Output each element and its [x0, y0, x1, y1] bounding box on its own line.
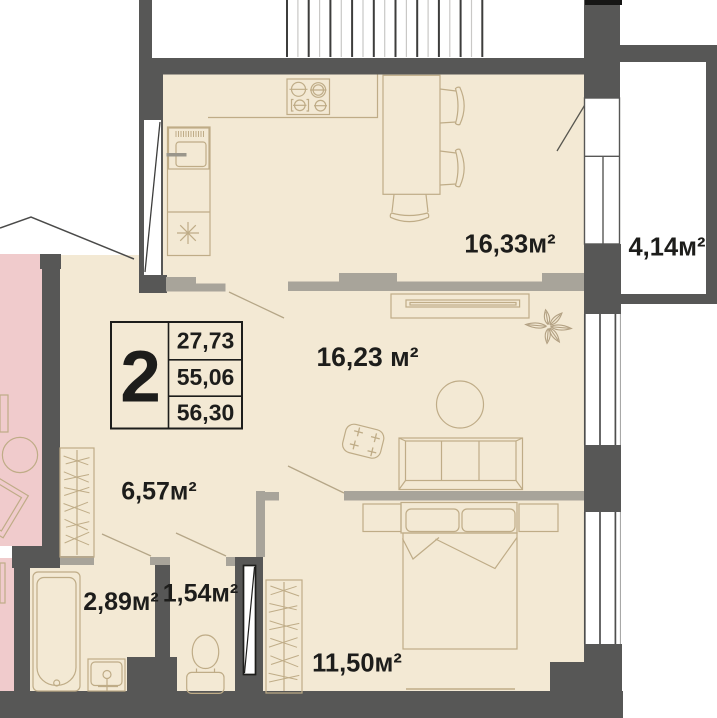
svg-text:1,54м²: 1,54м²: [163, 580, 238, 608]
svg-text:56,30: 56,30: [177, 399, 235, 425]
svg-text:2,89м²: 2,89м²: [83, 588, 158, 616]
svg-text:55,06: 55,06: [177, 364, 235, 390]
svg-text:27,73: 27,73: [177, 328, 235, 354]
svg-text:6,57м²: 6,57м²: [121, 478, 196, 506]
svg-text:2: 2: [120, 337, 161, 418]
svg-text:4,14м²: 4,14м²: [629, 234, 706, 262]
svg-text:11,50м²: 11,50м²: [312, 650, 402, 678]
svg-text:16,23 м²: 16,23 м²: [316, 342, 418, 372]
svg-text:16,33м²: 16,33м²: [464, 231, 555, 259]
